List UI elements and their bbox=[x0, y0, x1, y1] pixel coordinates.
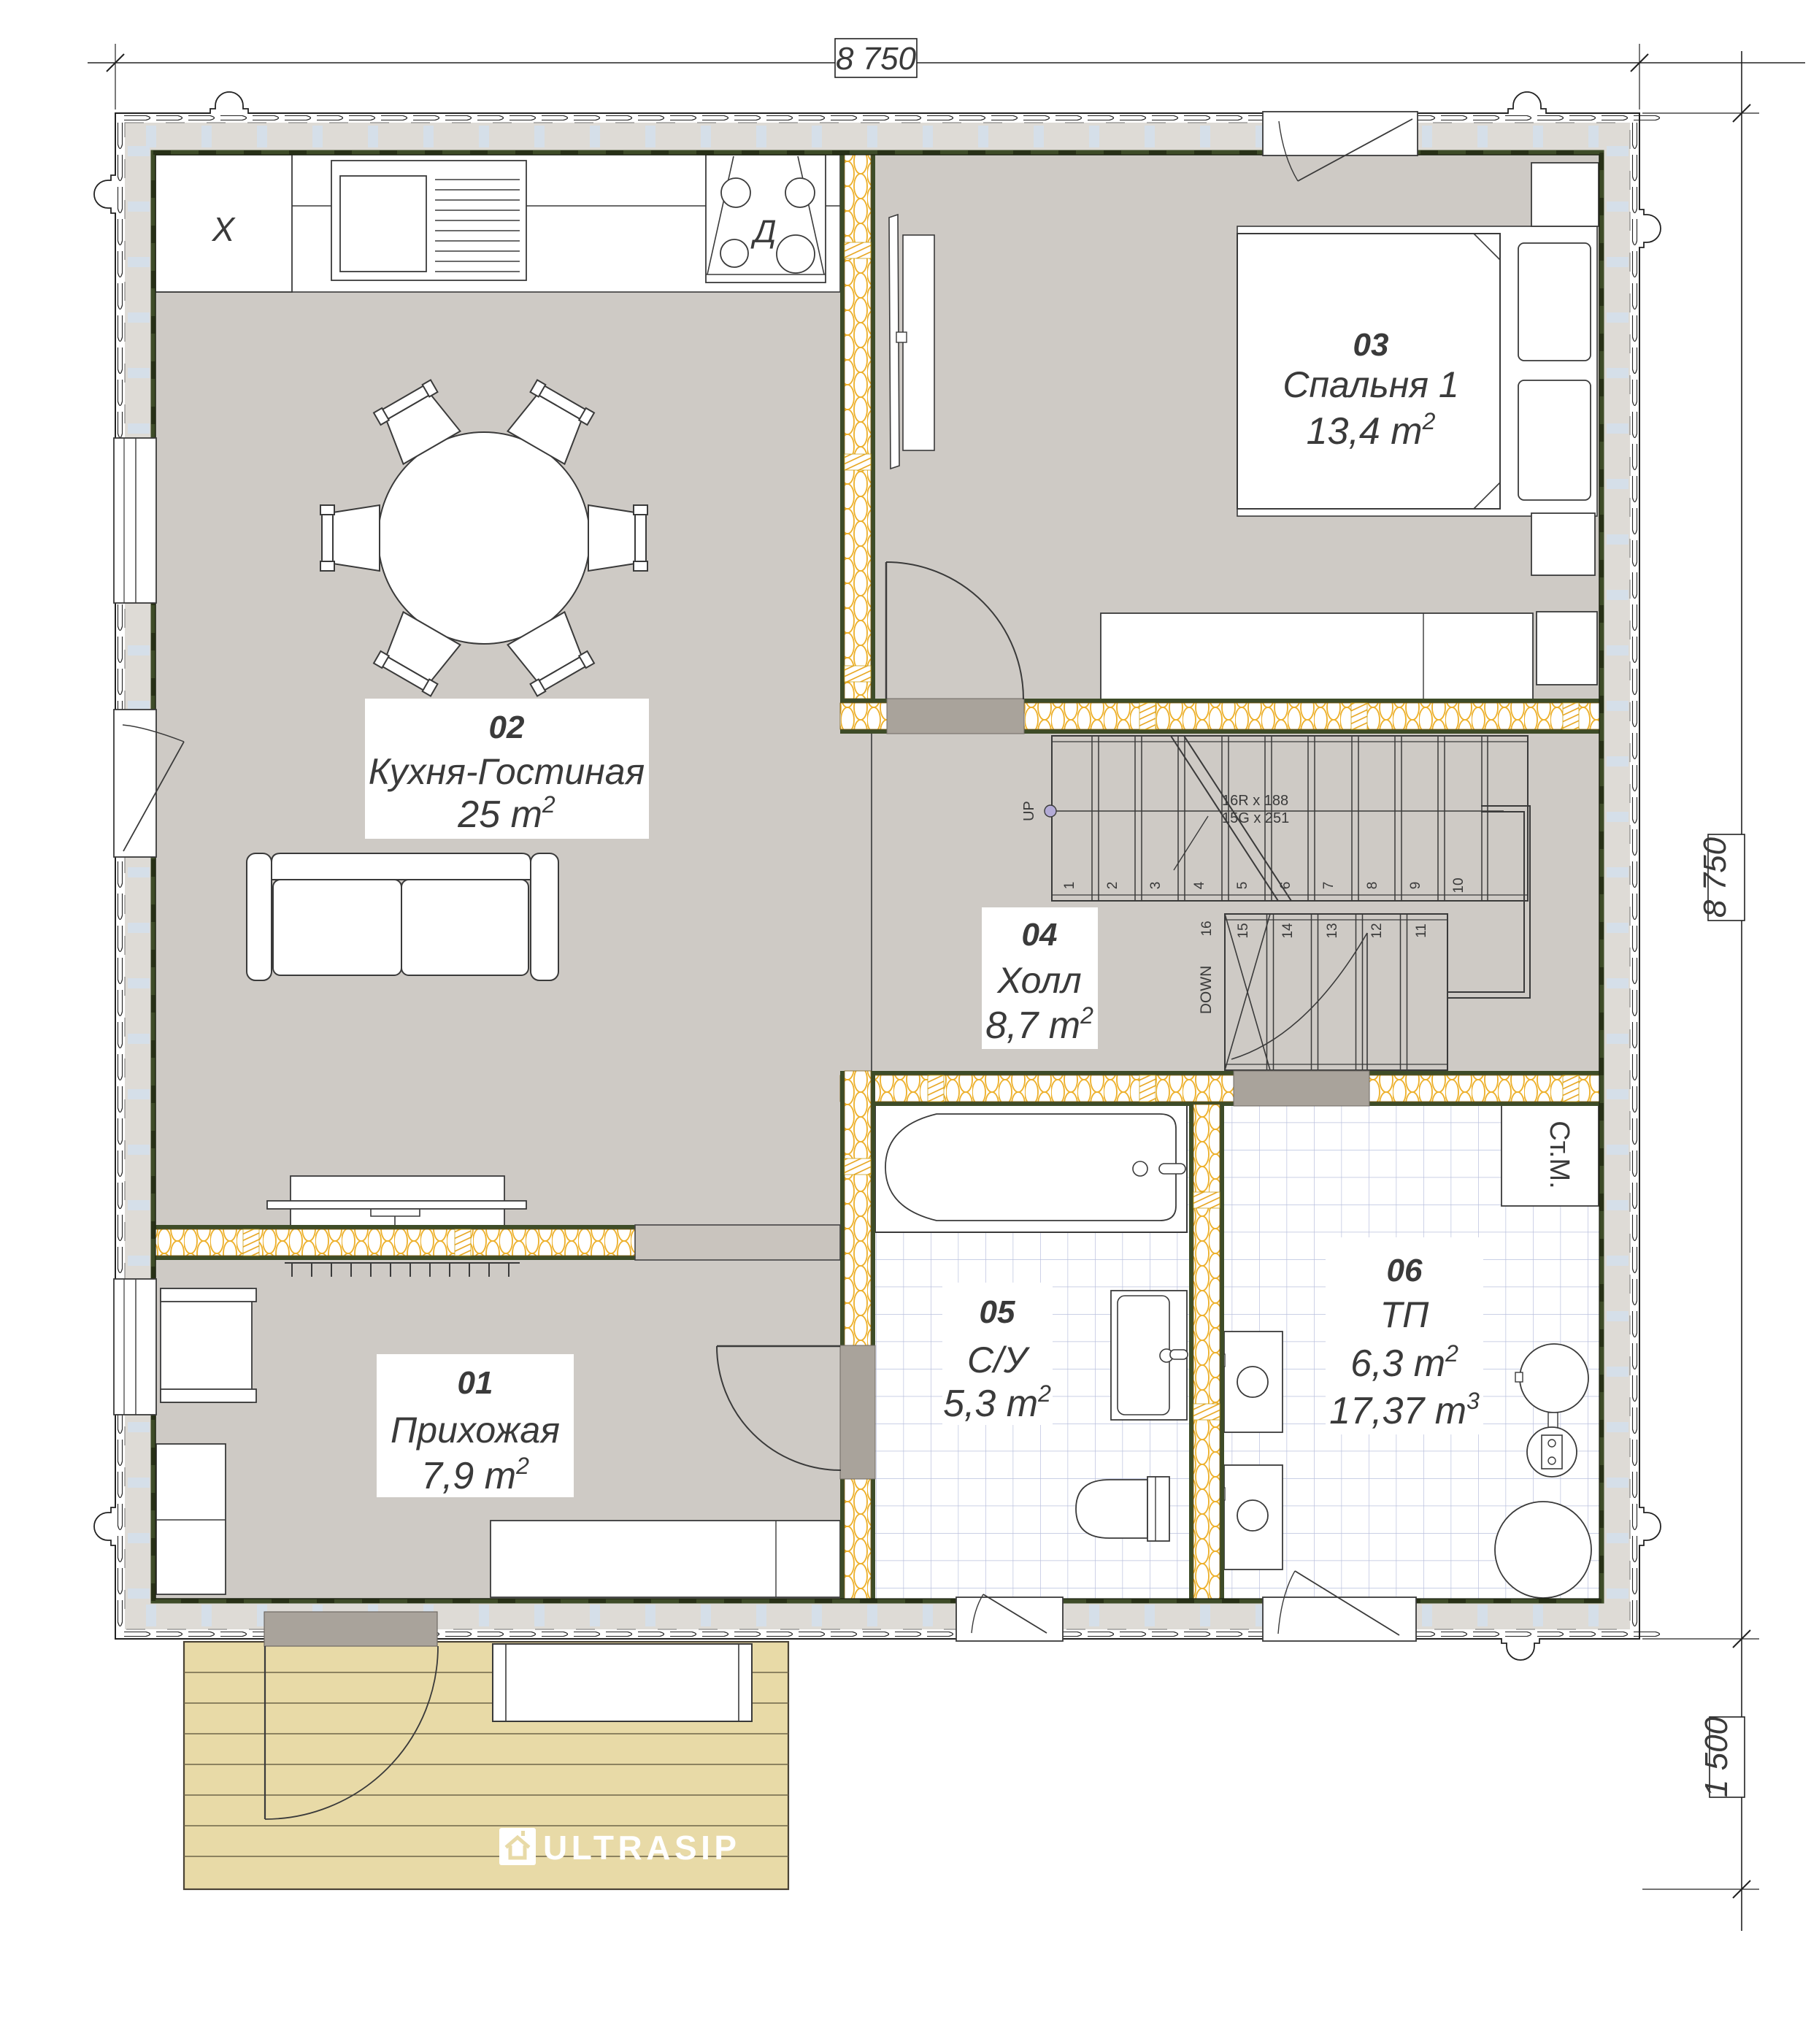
svg-text:13,4 m2: 13,4 m2 bbox=[1307, 408, 1436, 453]
svg-text:11: 11 bbox=[1414, 923, 1429, 938]
svg-text:5: 5 bbox=[1235, 882, 1250, 890]
svg-text:6,3 m2: 6,3 m2 bbox=[1350, 1340, 1458, 1385]
svg-text:14: 14 bbox=[1280, 923, 1296, 939]
svg-text:UP: UP bbox=[1021, 801, 1037, 821]
svg-text:Ст.М.: Ст.М. bbox=[1544, 1121, 1574, 1188]
svg-text:5,3 m2: 5,3 m2 bbox=[943, 1380, 1051, 1425]
svg-text:7: 7 bbox=[1321, 882, 1337, 890]
svg-text:8 750: 8 750 bbox=[1697, 837, 1733, 918]
svg-text:8 750: 8 750 bbox=[836, 41, 917, 77]
svg-text:05: 05 bbox=[980, 1294, 1015, 1330]
svg-text:04: 04 bbox=[1022, 917, 1058, 953]
svg-text:9: 9 bbox=[1408, 882, 1423, 890]
svg-text:17,37 m3: 17,37 m3 bbox=[1329, 1388, 1480, 1432]
svg-text:16R x 188: 16R x 188 bbox=[1222, 793, 1288, 809]
svg-text:1: 1 bbox=[1062, 882, 1077, 890]
svg-text:Кухня-Гостиная: Кухня-Гостиная bbox=[369, 751, 645, 792]
svg-text:4: 4 bbox=[1192, 881, 1207, 889]
svg-text:02: 02 bbox=[489, 710, 525, 745]
svg-text:X: X bbox=[212, 210, 237, 248]
svg-text:1 500: 1 500 bbox=[1699, 1716, 1734, 1797]
svg-text:Холл: Холл bbox=[996, 960, 1081, 1001]
svg-text:25 m2: 25 m2 bbox=[457, 791, 555, 836]
svg-text:ТП: ТП bbox=[1380, 1294, 1430, 1335]
svg-text:13: 13 bbox=[1325, 923, 1340, 938]
svg-text:03: 03 bbox=[1353, 327, 1389, 363]
svg-text:ULTRASIP: ULTRASIP bbox=[543, 1829, 741, 1867]
svg-text:15: 15 bbox=[1236, 923, 1251, 938]
svg-text:Д: Д bbox=[750, 214, 777, 250]
svg-text:3: 3 bbox=[1148, 882, 1164, 890]
svg-text:8,7 m2: 8,7 m2 bbox=[985, 1002, 1093, 1047]
svg-text:DOWN: DOWN bbox=[1198, 966, 1215, 1015]
svg-text:8: 8 bbox=[1365, 882, 1380, 890]
svg-text:16: 16 bbox=[1199, 921, 1215, 936]
svg-text:7,9 m2: 7,9 m2 bbox=[421, 1453, 529, 1497]
svg-text:06: 06 bbox=[1387, 1253, 1423, 1288]
svg-text:01: 01 bbox=[458, 1365, 493, 1401]
svg-text:10: 10 bbox=[1451, 877, 1466, 893]
svg-text:15G x 251: 15G x 251 bbox=[1222, 810, 1289, 826]
svg-text:С/У: С/У bbox=[967, 1340, 1031, 1380]
svg-text:12: 12 bbox=[1369, 923, 1385, 938]
svg-text:2: 2 bbox=[1105, 882, 1120, 890]
svg-text:Прихожая: Прихожая bbox=[391, 1410, 560, 1451]
svg-text:Спальня 1: Спальня 1 bbox=[1283, 364, 1458, 405]
